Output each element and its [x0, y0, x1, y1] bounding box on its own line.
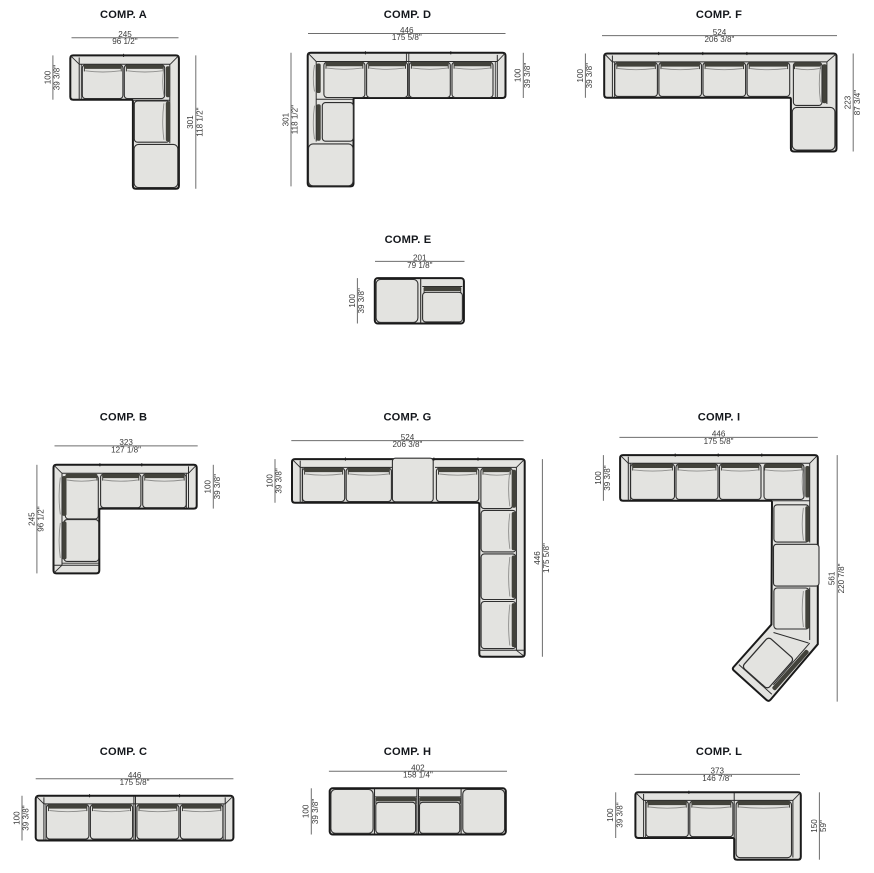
svg-text:220 7/8": 220 7/8" — [837, 563, 846, 593]
svg-text:118 1/2": 118 1/2" — [195, 107, 204, 136]
svg-text:175 5/8": 175 5/8" — [120, 778, 150, 787]
svg-text:39 3/8": 39 3/8" — [311, 799, 320, 825]
svg-text:127 1/8": 127 1/8" — [111, 445, 141, 454]
svg-text:118 1/2": 118 1/2" — [291, 105, 300, 134]
svg-text:COMP. E: COMP. E — [385, 234, 432, 246]
svg-text:301: 301 — [281, 112, 290, 126]
svg-text:158 1/4": 158 1/4" — [403, 771, 433, 780]
svg-text:100: 100 — [576, 68, 585, 82]
svg-text:39 3/8": 39 3/8" — [523, 63, 532, 89]
svg-text:206 3/8": 206 3/8" — [393, 440, 423, 449]
svg-text:87 3/4": 87 3/4" — [853, 90, 862, 116]
svg-text:COMP. H: COMP. H — [384, 746, 431, 758]
svg-text:100: 100 — [606, 808, 615, 822]
svg-text:59": 59" — [819, 820, 828, 832]
svg-text:100: 100 — [265, 474, 274, 488]
svg-text:96 1/2": 96 1/2" — [37, 506, 46, 532]
svg-text:150: 150 — [810, 819, 819, 833]
svg-text:39 3/8": 39 3/8" — [603, 465, 612, 491]
svg-text:39 3/8": 39 3/8" — [615, 802, 624, 828]
svg-text:100: 100 — [302, 804, 311, 818]
svg-text:39 3/8": 39 3/8" — [213, 474, 222, 500]
svg-text:39 3/8": 39 3/8" — [585, 63, 594, 89]
svg-text:301: 301 — [186, 115, 195, 129]
svg-text:561: 561 — [828, 571, 837, 585]
svg-text:39 3/8": 39 3/8" — [275, 468, 284, 494]
svg-text:100: 100 — [12, 811, 21, 825]
svg-text:79 1/8": 79 1/8" — [407, 261, 433, 270]
svg-text:COMP. A: COMP. A — [100, 9, 147, 21]
svg-text:COMP. F: COMP. F — [696, 9, 742, 21]
svg-text:COMP. B: COMP. B — [100, 412, 147, 424]
svg-text:COMP. L: COMP. L — [696, 746, 742, 758]
svg-text:100: 100 — [514, 68, 523, 82]
svg-text:206 3/8": 206 3/8" — [705, 35, 735, 44]
svg-text:COMP. D: COMP. D — [384, 9, 431, 21]
svg-text:245: 245 — [27, 512, 36, 526]
svg-text:100: 100 — [204, 479, 213, 493]
svg-text:100: 100 — [43, 70, 52, 84]
svg-text:446: 446 — [533, 551, 542, 565]
svg-text:COMP. G: COMP. G — [383, 412, 431, 424]
svg-text:146 7/8": 146 7/8" — [702, 774, 732, 783]
svg-text:COMP. C: COMP. C — [100, 746, 147, 758]
svg-text:175 5/8": 175 5/8" — [392, 33, 422, 42]
svg-text:COMP. I: COMP. I — [698, 412, 741, 424]
svg-text:39 3/8": 39 3/8" — [357, 288, 366, 314]
svg-text:223: 223 — [844, 95, 853, 109]
svg-text:100: 100 — [594, 471, 603, 485]
svg-text:100: 100 — [348, 294, 357, 308]
svg-text:175 5/8": 175 5/8" — [542, 543, 551, 573]
svg-text:175 5/8": 175 5/8" — [704, 437, 734, 446]
svg-text:39 3/8": 39 3/8" — [22, 805, 31, 831]
svg-text:96 1/2": 96 1/2" — [112, 37, 138, 46]
svg-text:39 3/8": 39 3/8" — [53, 65, 62, 91]
